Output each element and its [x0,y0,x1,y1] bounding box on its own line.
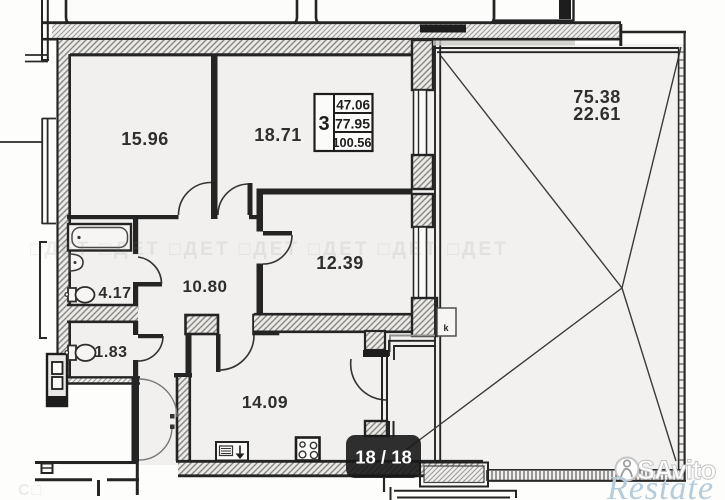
svg-text:□ДЕТ □ДЕТ □ДЕТ □ДЕТ □ДЕТ □ДЕТ: □ДЕТ □ДЕТ □ДЕТ □ДЕТ □ДЕТ □ДЕТ □ДЕТ [30,239,509,260]
svg-text:15.96: 15.96 [121,129,169,149]
svg-text:14.09: 14.09 [242,392,288,412]
svg-text:С□: С□ [18,482,43,499]
svg-text:1.83: 1.83 [94,344,127,361]
svg-text:100.56: 100.56 [332,135,371,150]
svg-text:4.17: 4.17 [98,285,131,302]
svg-text:Restate: Restate [606,470,714,500]
svg-text:47.06: 47.06 [336,98,370,113]
svg-text:10.80: 10.80 [182,277,227,296]
svg-text:3: 3 [318,113,329,135]
svg-text:18.71: 18.71 [254,125,302,145]
svg-text:12.39: 12.39 [316,253,364,273]
svg-text:18 / 18: 18 / 18 [355,447,412,468]
svg-text:22.61: 22.61 [573,104,621,124]
svg-text:77.95: 77.95 [335,116,370,132]
